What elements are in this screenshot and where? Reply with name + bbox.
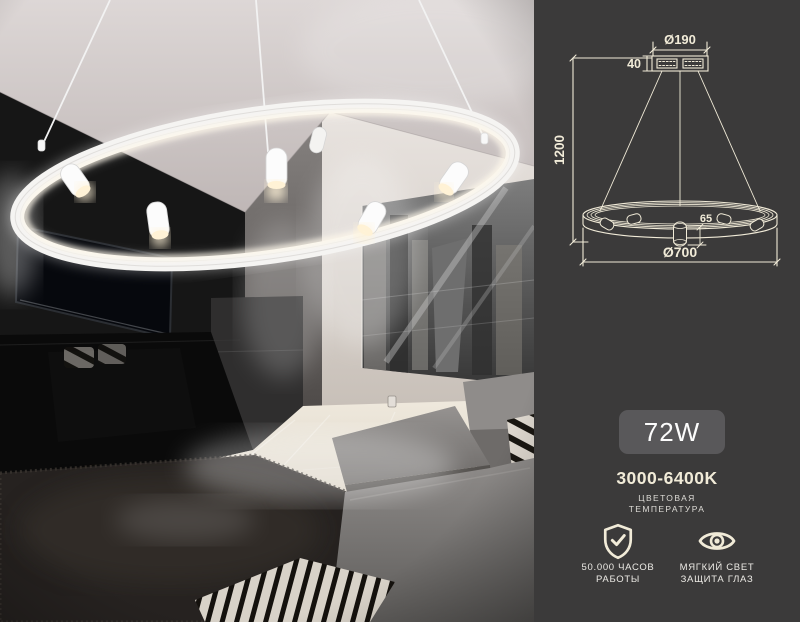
spec-panel: Ø190 40 1200 65 Ø700 72W 3000-6400K ЦВЕТ… [534,0,800,622]
feature-soft-light: МЯГКИЙ СВЕТ ЗАЩИТА ГЛАЗ [647,522,787,586]
label-ring-diameter: Ø700 [663,244,697,260]
color-temp-label-line1: ЦВЕТОВАЯ [534,493,800,503]
eye-icon [697,527,737,555]
wattage-value: 72W [644,417,700,448]
label-spot-height: 65 [700,213,712,225]
color-temp-value: 3000-6400K [534,468,800,489]
color-temp-label-line2: ТЕМПЕРАТУРА [534,504,800,514]
wattage-badge: 72W [619,410,725,454]
canopy [652,56,708,71]
shield-check-icon [601,523,635,560]
dimension-diagram: Ø190 40 1200 65 Ø700 [534,0,800,300]
soft-light-label-line2: ЗАЩИТА ГЛАЗ [647,574,787,586]
cables [600,71,760,211]
product-card: Ø190 40 1200 65 Ø700 72W 3000-6400K ЦВЕТ… [0,0,800,622]
label-suspension-height: 1200 [552,135,567,165]
label-canopy-diameter: Ø190 [664,32,696,47]
ring-spots [599,213,766,246]
label-canopy-height: 40 [627,57,641,71]
soft-light-label-line1: МЯГКИЙ СВЕТ [647,562,787,574]
product-photo [0,0,534,622]
